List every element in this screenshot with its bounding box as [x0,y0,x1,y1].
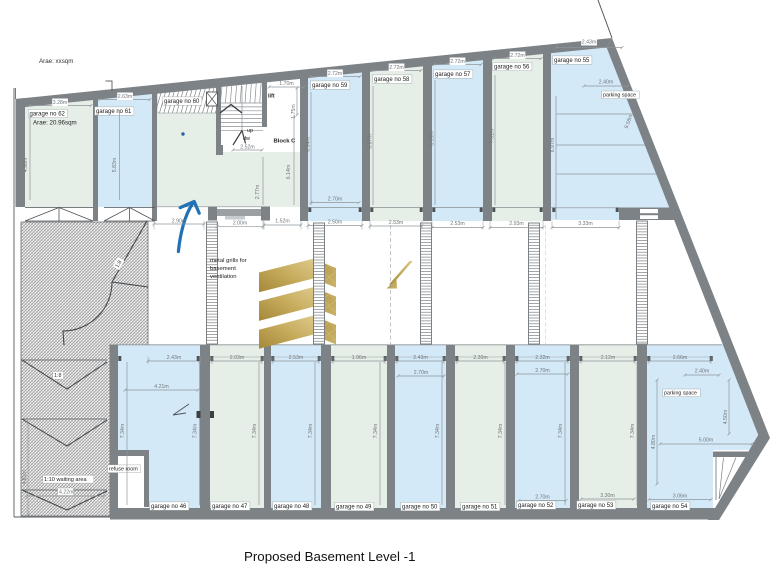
svg-text:refuse room: refuse room [109,467,138,473]
svg-text:basement: basement [210,266,236,272]
svg-text:6.97m: 6.97m [550,138,556,152]
svg-text:3.06m: 3.06m [673,494,687,500]
svg-text:2.72m: 2.72m [450,59,464,65]
svg-text:2.52m: 2.52m [240,145,254,151]
svg-text:4.98m: 4.98m [23,158,29,172]
svg-text:parking space: parking space [664,391,697,397]
svg-text:2.70m: 2.70m [328,197,342,203]
svg-text:2.90m: 2.90m [172,219,186,225]
svg-text:7.34m: 7.34m [435,424,441,438]
svg-text:2.77m: 2.77m [255,185,261,199]
svg-text:Arae: 20.96sqm: Arae: 20.96sqm [33,120,77,127]
svg-text:2.70m: 2.70m [535,368,549,374]
svg-text:up: up [247,128,253,134]
svg-text:2.43m: 2.43m [413,355,427,361]
svg-text:metal grills for: metal grills for [210,258,247,264]
svg-text:2.53m: 2.53m [289,355,303,361]
svg-text:2.12m: 2.12m [601,355,615,361]
svg-text:5.00m: 5.00m [699,438,713,444]
svg-text:garage no 48: garage no 48 [274,504,310,510]
svg-text:3.33m: 3.33m [578,221,592,227]
svg-text:garage no 61: garage no 61 [96,109,132,115]
svg-text:2.40m: 2.40m [599,80,613,86]
svg-text:6.14m: 6.14m [286,165,292,179]
svg-text:2.32m: 2.32m [535,355,549,361]
svg-text:garage no 53: garage no 53 [578,503,614,509]
svg-text:1:10 waiting area: 1:10 waiting area [44,477,87,483]
svg-text:Block C: Block C [274,139,297,145]
svg-text:2.00m: 2.00m [233,221,247,227]
svg-text:garage no 52: garage no 52 [518,503,554,509]
svg-text:2.03m: 2.03m [230,355,244,361]
svg-text:2.50m: 2.50m [328,220,342,226]
svg-text:garage no 59: garage no 59 [312,83,348,89]
svg-text:lift: lift [268,94,275,100]
svg-text:dw: dw [243,136,250,142]
svg-text:1.52m: 1.52m [275,219,289,225]
svg-text:garage no 56: garage no 56 [494,65,530,71]
svg-text:garage no 55: garage no 55 [554,58,590,64]
svg-text:garage no 47: garage no 47 [212,504,248,510]
svg-text:2.72m: 2.72m [328,71,342,77]
svg-text:3.30m: 3.30m [600,493,614,499]
svg-text:1:8: 1:8 [54,373,62,379]
svg-text:2.43m: 2.43m [582,40,596,46]
svg-text:ventilation: ventilation [210,274,237,280]
svg-text:6.34m: 6.34m [306,137,312,151]
svg-text:2.40m: 2.40m [695,369,709,375]
svg-text:2.63m: 2.63m [118,94,132,100]
svg-text:garage no 60: garage no 60 [164,99,200,105]
svg-text:7.34m: 7.34m [498,424,504,438]
svg-text:4.22m: 4.22m [59,490,73,496]
svg-text:1.96m: 1.96m [352,355,366,361]
svg-text:4.21m: 4.21m [154,384,168,390]
svg-text:7.34m: 7.34m [193,424,199,438]
svg-text:garage no 57: garage no 57 [435,72,471,78]
svg-text:2.70m: 2.70m [535,495,549,501]
svg-text:Proposed Basement Level -1: Proposed Basement Level -1 [244,549,415,564]
svg-text:garage no 54: garage no 54 [652,504,688,510]
svg-text:7.34m: 7.34m [630,424,636,438]
svg-text:garage no 50: garage no 50 [402,505,438,511]
svg-text:6.99m: 6.99m [430,131,436,145]
svg-text:7.34m: 7.34m [308,424,314,438]
svg-text:7.34m: 7.34m [558,424,564,438]
svg-text:7.34m: 7.34m [373,424,379,438]
svg-text:7.34m: 7.34m [120,424,126,438]
svg-text:2.43m: 2.43m [167,355,181,361]
svg-text:7.34m: 7.34m [252,424,258,438]
svg-text:2.72m: 2.72m [389,65,403,71]
svg-text:garage no 49: garage no 49 [336,505,372,511]
svg-text:2.70m: 2.70m [414,370,428,376]
svg-text:garage no 58: garage no 58 [374,77,410,83]
svg-text:garage no 62: garage no 62 [30,112,66,118]
svg-text:5.83m: 5.83m [112,158,118,172]
svg-text:2.66m: 2.66m [673,355,687,361]
svg-text:2.30m: 2.30m [473,355,487,361]
svg-text:4.50m: 4.50m [723,410,729,424]
svg-text:1.70m: 1.70m [279,81,293,87]
svg-text:garage no 46: garage no 46 [151,504,187,510]
svg-text:6.87m: 6.87m [368,134,374,148]
svg-text:2.93m: 2.93m [509,221,523,227]
svg-text:4.81m: 4.81m [22,470,28,484]
svg-text:2.72m: 2.72m [510,53,524,59]
svg-text:3.28m: 3.28m [53,100,67,106]
svg-text:Arae: xxsqm: Arae: xxsqm [39,58,73,65]
svg-text:2.53m: 2.53m [389,220,403,226]
svg-text:parking space: parking space [603,93,636,99]
svg-text:2.53m: 2.53m [450,221,464,227]
svg-text:4.80m: 4.80m [651,435,657,449]
svg-text:garage no 51: garage no 51 [462,505,498,511]
svg-text:7.31m: 7.31m [490,129,496,143]
